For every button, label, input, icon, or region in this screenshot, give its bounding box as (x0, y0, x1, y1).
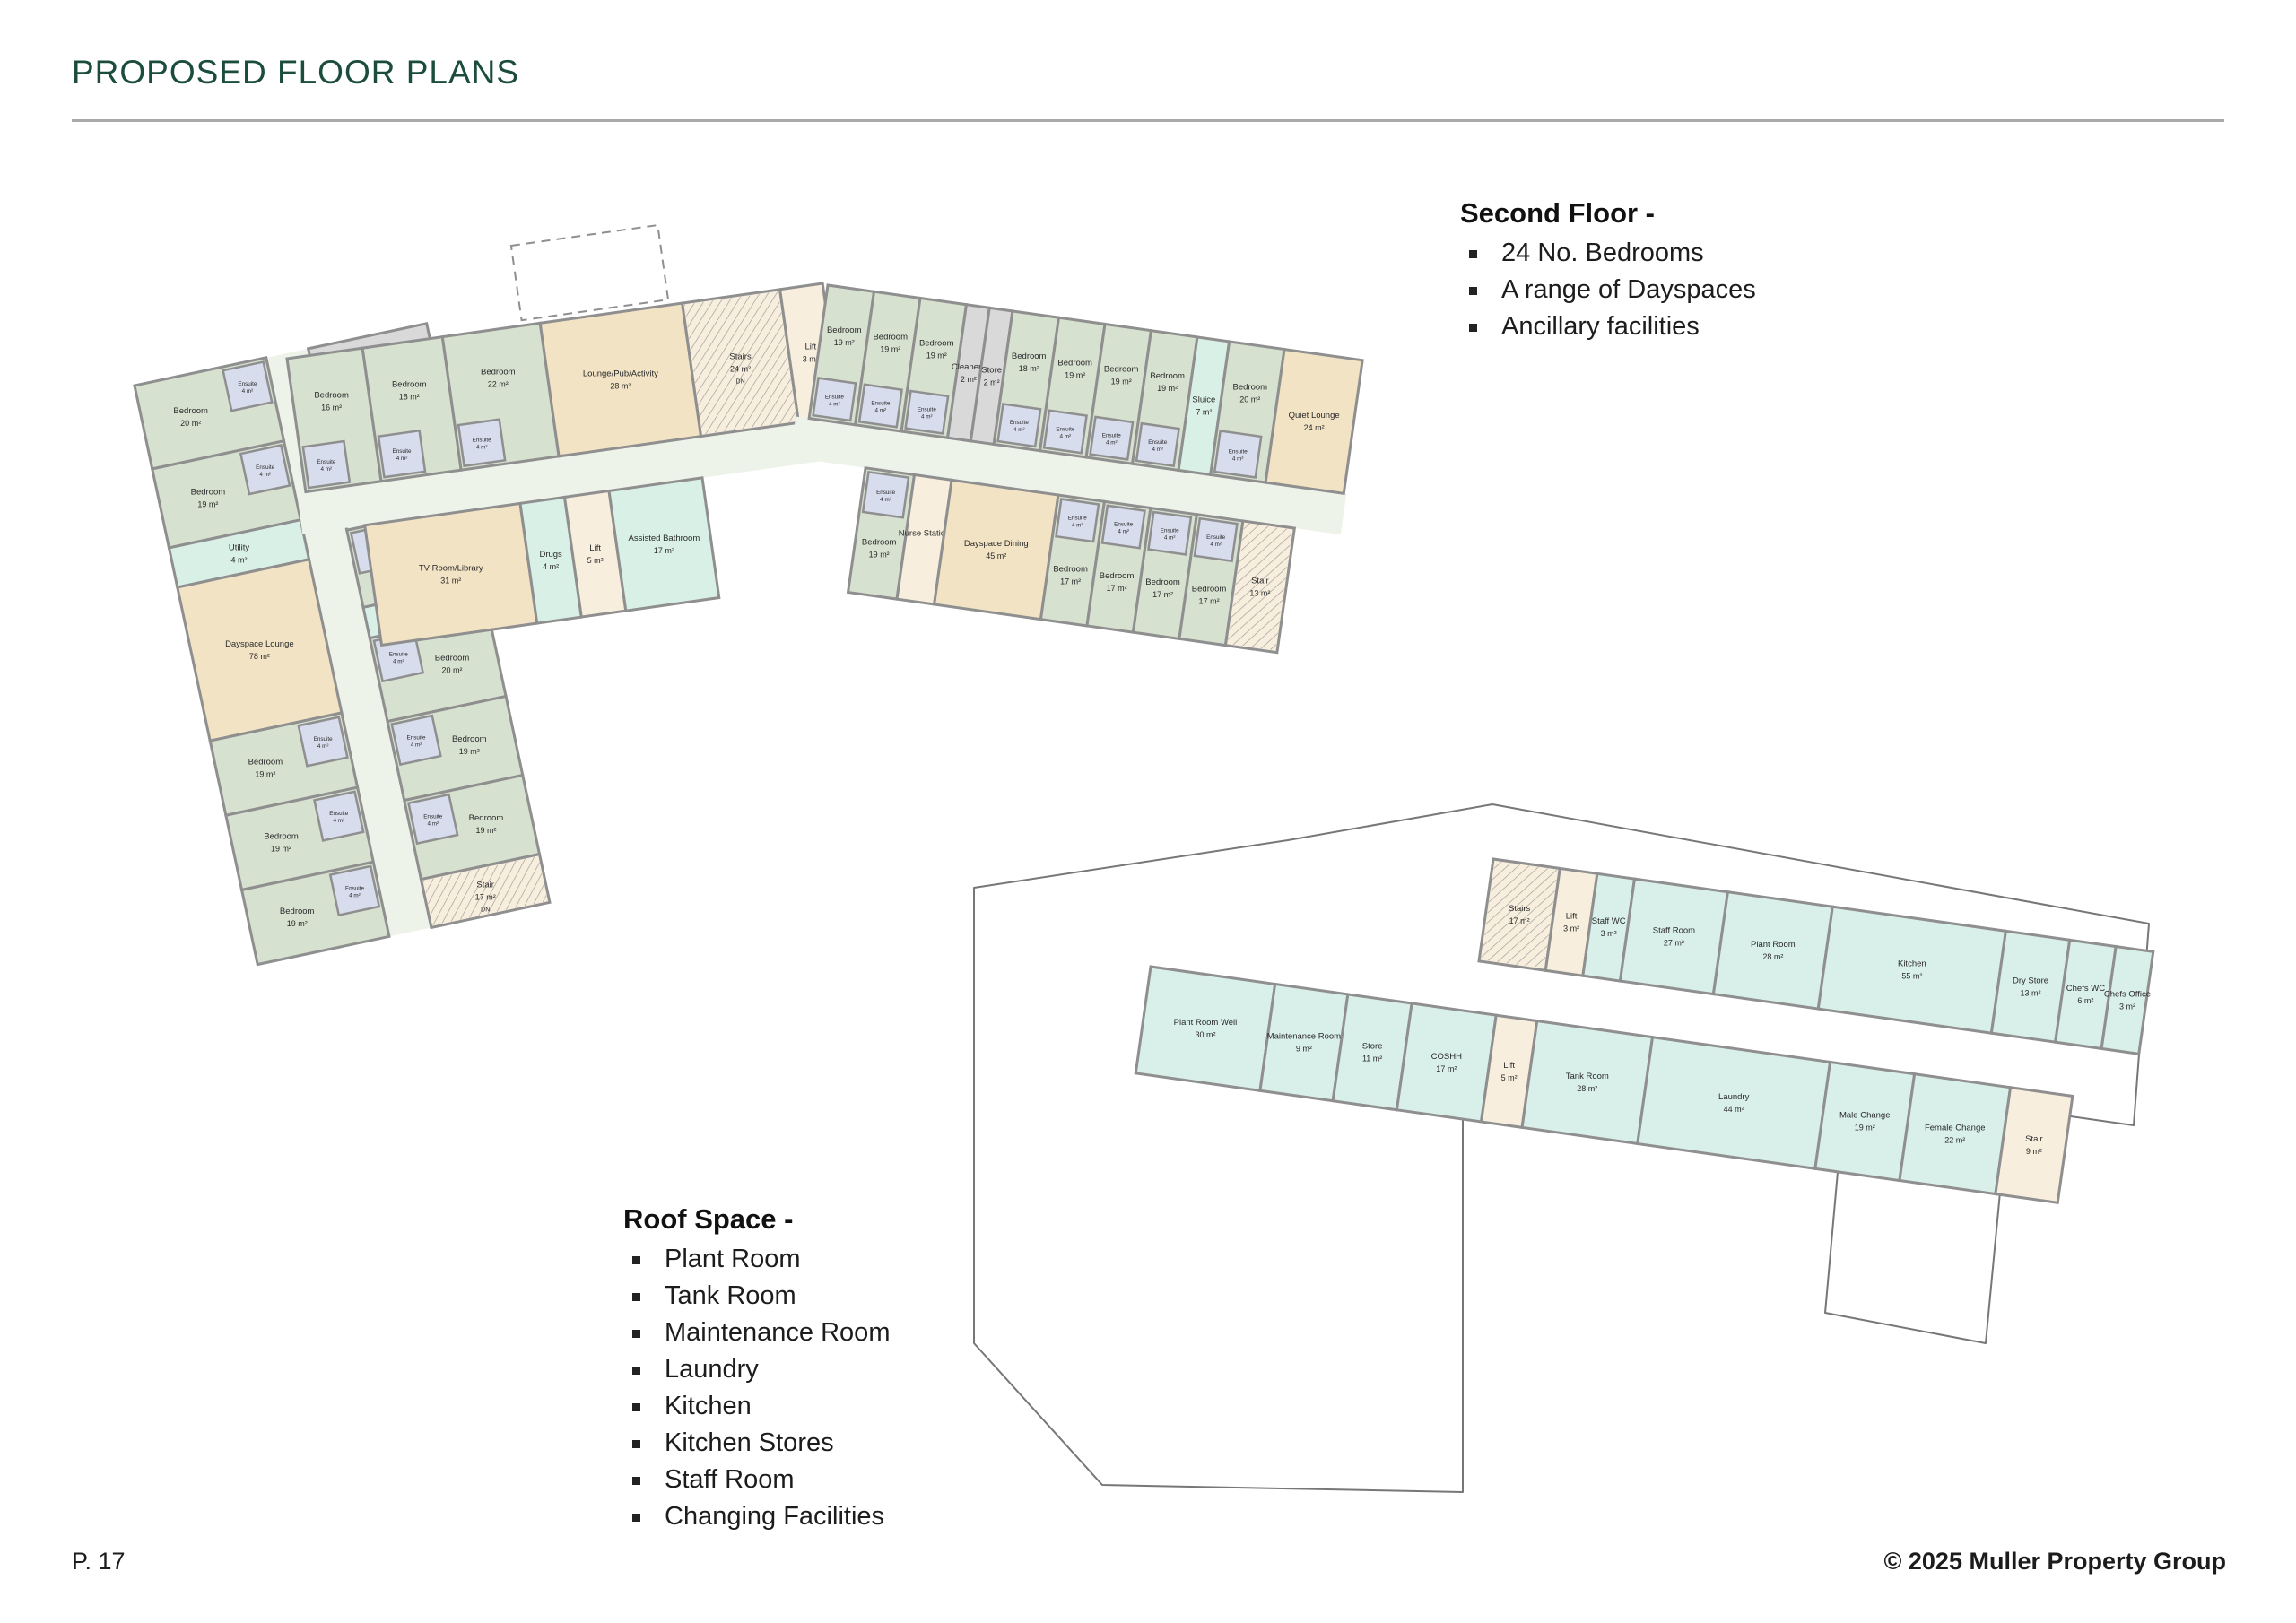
ensuite-name: Ensuite (317, 459, 336, 465)
room-coshh (1396, 1003, 1496, 1122)
ensuite-area: 4 m² (1106, 440, 1118, 447)
room-name: Lift (804, 343, 816, 352)
ensuite-area: 4 m² (1118, 529, 1129, 535)
ensuite-name: Ensuite (314, 736, 334, 742)
room-name: Lounge/Pub/Activity (583, 369, 658, 378)
ensuite-name: Ensuite (1114, 522, 1134, 528)
ensuite-name: Ensuite (1068, 515, 1088, 521)
room-name: Bedroom (481, 367, 516, 377)
title-divider (72, 119, 2224, 122)
room-area: 28 m² (1762, 952, 1783, 961)
room-name: Chefs Office (2104, 989, 2151, 999)
room-staff-room (1620, 879, 1727, 994)
room-area: 9 m² (1296, 1045, 1312, 1054)
room-area: 17 m² (1152, 590, 1173, 599)
bullet-item: 24 No. Bedrooms (1460, 239, 1962, 268)
roof-space-bullet-list: Plant RoomTank RoomMaintenance RoomLaund… (623, 1245, 1179, 1532)
room-name: Dayspace Dining (964, 539, 1029, 549)
room-lounge-pub-activity (540, 303, 700, 456)
room-area: 20 m² (442, 666, 463, 675)
room-area: 2 m² (961, 375, 977, 384)
room-area: 19 m² (197, 500, 218, 509)
page-title: PROPOSED FLOOR PLANS (72, 54, 519, 91)
room-name: Drugs (539, 550, 562, 560)
ensuite-name: Ensuite (871, 400, 891, 406)
room-name: Maintenance Room (1267, 1032, 1341, 1042)
room-name: Sluice (1192, 395, 1215, 405)
dashed-outline (511, 225, 668, 320)
bullet-item: Laundry (623, 1355, 1179, 1384)
room-name: Bedroom (1012, 352, 1047, 361)
ensuite-name: Ensuite (345, 885, 365, 891)
room-area: 19 m² (1111, 378, 1132, 386)
page-number: P. 17 (72, 1548, 126, 1575)
room-area: 19 m² (834, 338, 855, 347)
room-name: Bedroom (919, 339, 954, 349)
bullet-text: Kitchen (665, 1392, 752, 1421)
room-name: Bedroom (248, 757, 283, 767)
room-name: Bedroom (827, 325, 862, 335)
bullet-text: Changing Facilities (665, 1502, 884, 1532)
room-area: 13 m² (2021, 988, 2041, 997)
room-area: 6 m² (2077, 996, 2093, 1005)
room-area: 7 m² (1196, 408, 1212, 417)
room-quiet-lounge (1265, 350, 1362, 494)
room-name: Quiet Lounge (1289, 411, 1340, 421)
room-area: 4 m² (231, 555, 248, 564)
room-name: Bedroom (173, 406, 208, 416)
room-name: Staff WC (1592, 916, 1626, 926)
ensuite-area: 4 m² (1164, 535, 1176, 542)
bullet-text: Ancillary facilities (1501, 312, 1700, 342)
room-area: 45 m² (986, 551, 1006, 560)
bullet-text: Laundry (665, 1355, 759, 1384)
ensuite-area: 4 m² (921, 414, 933, 421)
ensuite-area: 4 m² (393, 658, 404, 664)
room-area: 3 m² (2119, 1002, 2135, 1011)
bullet-item: Kitchen (623, 1392, 1179, 1421)
room-area: 2 m² (984, 378, 1000, 386)
room-name: TV Room/Library (419, 563, 483, 573)
room-name: Bedroom (1145, 577, 1180, 587)
room-name: Bedroom (1100, 571, 1135, 581)
bullet-text: Maintenance Room (665, 1318, 890, 1348)
room-name: Bedroom (392, 379, 427, 389)
bullet-marker (632, 1514, 640, 1522)
room-tank-room (1522, 1021, 1652, 1144)
room-male-change (1815, 1062, 1915, 1180)
room-name: Utility (229, 542, 249, 552)
ensuite-name: Ensuite (1148, 439, 1168, 446)
ensuite-name: Ensuite (407, 734, 427, 741)
room-name: Bedroom (862, 538, 897, 548)
bullet-item: Staff Room (623, 1465, 1179, 1495)
ensuite-area: 4 m² (875, 407, 887, 413)
bullet-item: Changing Facilities (623, 1502, 1179, 1532)
room-area: 17 m² (475, 892, 496, 901)
room-name: Plant Room (1751, 940, 1796, 950)
room-area: 24 m² (730, 365, 751, 374)
room-name: Stair (1251, 576, 1269, 586)
room-name: Bedroom (280, 907, 315, 916)
room-area: 19 m² (1855, 1123, 1875, 1132)
room-name: Bedroom (469, 813, 504, 823)
bullet-text: A range of Dayspaces (1501, 275, 1756, 305)
room-name: Dry Store (2013, 976, 2048, 985)
room-area: 19 m² (926, 352, 947, 360)
room-name: Bedroom (1192, 584, 1227, 594)
roof-space-annotation: Roof Space - Plant RoomTank RoomMaintena… (623, 1203, 1179, 1539)
room-area: 5 m² (587, 556, 604, 565)
bullet-item: Tank Room (623, 1281, 1179, 1311)
room-stair (1996, 1088, 2073, 1203)
ensuite-area: 4 m² (411, 742, 422, 748)
room-female-change (1900, 1074, 2011, 1194)
room-area: 22 m² (1944, 1136, 1965, 1145)
room-area: 31 m² (440, 576, 461, 585)
ensuite-name: Ensuite (329, 811, 349, 817)
ensuite-area: 4 m² (396, 456, 408, 462)
room-plant-room (1713, 892, 1832, 1009)
ensuite-area: 4 m² (1060, 433, 1072, 439)
ensuite-area: 4 m² (1210, 542, 1222, 548)
room-area: 17 m² (654, 546, 674, 555)
ensuite-name: Ensuite (256, 464, 275, 471)
room-area: 19 m² (287, 919, 308, 928)
ensuite-name: Ensuite (1206, 534, 1226, 541)
room-area: 19 m² (271, 845, 291, 854)
room-note: DN (481, 907, 490, 913)
room-area: 22 m² (488, 379, 509, 388)
room-area: 55 m² (1901, 972, 1922, 981)
ensuite-name: Ensuite (1161, 528, 1180, 534)
room-name: Bedroom (452, 734, 487, 744)
ensuite-name: Ensuite (1229, 448, 1248, 455)
room-name: Stairs (729, 352, 752, 362)
stair-hatch (684, 291, 796, 434)
bullet-text: Kitchen Stores (665, 1428, 834, 1458)
room-area: 17 m² (1509, 916, 1530, 925)
ensuite-area: 4 m² (880, 497, 891, 503)
room-area: 78 m² (249, 652, 270, 661)
ensuite-area: 4 m² (829, 401, 840, 407)
bullet-item: A range of Dayspaces (1460, 275, 1962, 305)
room-area: 17 m² (1436, 1064, 1457, 1073)
bullet-marker (632, 1293, 640, 1301)
room-note: DN (736, 379, 745, 386)
ensuite-name: Ensuite (238, 381, 257, 387)
ensuite-name: Ensuite (473, 438, 492, 444)
room-name: Bedroom (191, 488, 226, 498)
room-assisted-bathroom (609, 478, 719, 611)
room-area: 13 m² (1249, 588, 1270, 597)
room-name: Chefs WC (2066, 984, 2105, 994)
ensuite-name: Ensuite (1010, 420, 1030, 426)
ensuite-name: Ensuite (1102, 433, 1122, 439)
second-floor-bullet-list: 24 No. BedroomsA range of DayspacesAncil… (1460, 239, 1962, 342)
bullet-marker (632, 1330, 640, 1338)
bullet-item: Kitchen Stores (623, 1428, 1179, 1458)
room-name: Plant Room Well (1174, 1018, 1238, 1028)
room-area: 11 m² (1362, 1054, 1382, 1063)
ensuite-name: Ensuite (876, 490, 896, 496)
room-area: 17 m² (1107, 584, 1127, 593)
bullet-marker (1469, 287, 1477, 295)
room-area: 28 m² (610, 381, 631, 390)
room-plant-room-well (1135, 967, 1274, 1090)
room-area: 18 m² (1019, 364, 1039, 373)
room-name: Stairs (1509, 904, 1531, 914)
bullet-marker (632, 1403, 640, 1411)
room-area: 19 m² (255, 769, 275, 778)
room-name: Female Change (1925, 1124, 1986, 1133)
room-area: 19 m² (869, 551, 890, 560)
bullet-item: Maintenance Room (623, 1318, 1179, 1348)
room-area: 5 m² (1501, 1073, 1518, 1082)
room-name: Store (981, 365, 1002, 375)
room-laundry (1638, 1037, 1831, 1169)
room-name: COSHH (1431, 1052, 1462, 1062)
room-name: Laundry (1718, 1092, 1750, 1102)
ensuite-area: 4 m² (242, 388, 254, 395)
plan-second-floor: Ensuite4 m²Bedroom20 m²Ensuite4 m²Bedroo… (135, 202, 1365, 964)
room-name: Tank Room (1566, 1072, 1609, 1081)
ensuite-area: 4 m² (1152, 447, 1164, 453)
room-area: 19 m² (1157, 384, 1178, 393)
room-name: Bedroom (1150, 371, 1185, 381)
room-name: Assisted Bathroom (629, 534, 700, 543)
ensuite-name: Ensuite (389, 651, 409, 657)
room-area: 20 m² (1239, 395, 1260, 404)
ensuite-area: 4 m² (321, 466, 333, 473)
ensuite-area: 4 m² (349, 892, 361, 898)
bullet-text: Plant Room (665, 1245, 801, 1274)
bullet-item: Ancillary facilities (1460, 312, 1962, 342)
room-area: 27 m² (1664, 938, 1684, 947)
room-name: Dayspace Lounge (225, 639, 294, 649)
room-area: 19 m² (475, 826, 496, 835)
segment-east-wing: Ensuite4 m²Bedroom19 m²Ensuite4 m²Bedroo… (772, 283, 1365, 659)
room-name: Store (1362, 1041, 1383, 1051)
bullet-text: 24 No. Bedrooms (1501, 239, 1704, 268)
room-name: Bedroom (1053, 565, 1088, 575)
ensuite-name: Ensuite (1056, 426, 1075, 432)
ensuite-area: 4 m² (427, 820, 439, 827)
room-area: 9 m² (2026, 1147, 2042, 1156)
ensuite-area: 4 m² (1072, 522, 1083, 528)
bullet-marker (632, 1440, 640, 1448)
room-name: Bedroom (314, 391, 349, 401)
room-name: Stair (476, 880, 494, 890)
roof-space-heading: Roof Space - (623, 1203, 1179, 1236)
room-area: 18 m² (399, 392, 420, 401)
room-name: Bedroom (873, 332, 908, 342)
room-area: 30 m² (1195, 1030, 1215, 1039)
room-name: Lift (589, 543, 601, 553)
bullet-marker (1469, 250, 1477, 258)
ensuite-area: 4 m² (317, 743, 329, 750)
room-tv-room-library (365, 503, 537, 645)
ensuite-name: Ensuite (393, 448, 413, 455)
room-area: 44 m² (1724, 1105, 1744, 1114)
room-area: 28 m² (1577, 1084, 1597, 1093)
ensuite-area: 4 m² (333, 818, 344, 824)
bullet-marker (632, 1367, 640, 1375)
room-area: 4 m² (543, 562, 559, 571)
room-name: Stair (2025, 1134, 2043, 1144)
room-area: 16 m² (321, 404, 342, 412)
room-name: Bedroom (1233, 383, 1268, 393)
ensuite-area: 4 m² (1232, 456, 1244, 462)
room-name: Bedroom (1057, 358, 1092, 368)
bullet-marker (1469, 324, 1477, 332)
room-name: Lift (1566, 911, 1578, 921)
room-area: 20 m² (180, 419, 201, 428)
room-dayspace-dining (935, 480, 1058, 619)
ensuite-area: 4 m² (1013, 427, 1025, 433)
ensuite-area: 4 m² (476, 445, 488, 451)
copyright: © 2025 Muller Property Group (1884, 1548, 2227, 1575)
second-floor-heading: Second Floor - (1460, 197, 1962, 230)
bullet-item: Plant Room (623, 1245, 1179, 1274)
bullet-text: Tank Room (665, 1281, 796, 1311)
room-name: Bedroom (435, 654, 470, 664)
room-area: 3 m² (1601, 929, 1617, 938)
room-area: 24 m² (1304, 423, 1325, 432)
room-name: Bedroom (264, 832, 299, 842)
room-area: 19 m² (1065, 370, 1085, 379)
bullet-marker (632, 1477, 640, 1485)
room-name: Staff Room (1653, 925, 1695, 935)
second-floor-annotation: Second Floor - 24 No. BedroomsA range of… (1460, 197, 1962, 349)
room-area: 17 m² (1060, 577, 1081, 586)
ensuite-name: Ensuite (918, 407, 937, 413)
room-area: 19 m² (459, 747, 480, 756)
room-name: Lift (1503, 1061, 1515, 1071)
ensuite-area: 4 m² (259, 472, 271, 478)
room-area: 17 m² (1199, 596, 1220, 605)
document-page: { "header": { "title": "PROPOSED FLOOR P… (0, 0, 2296, 1623)
room-area: 3 m² (1563, 924, 1579, 933)
room-name: Kitchen (1898, 959, 1926, 969)
bullet-text: Staff Room (665, 1465, 795, 1495)
room-area: 19 m² (880, 344, 900, 353)
room-name: Bedroom (1104, 365, 1139, 375)
room-name: Male Change (1839, 1110, 1891, 1120)
ensuite-name: Ensuite (825, 394, 845, 400)
bullet-marker (632, 1256, 640, 1264)
ensuite-name: Ensuite (423, 813, 443, 820)
